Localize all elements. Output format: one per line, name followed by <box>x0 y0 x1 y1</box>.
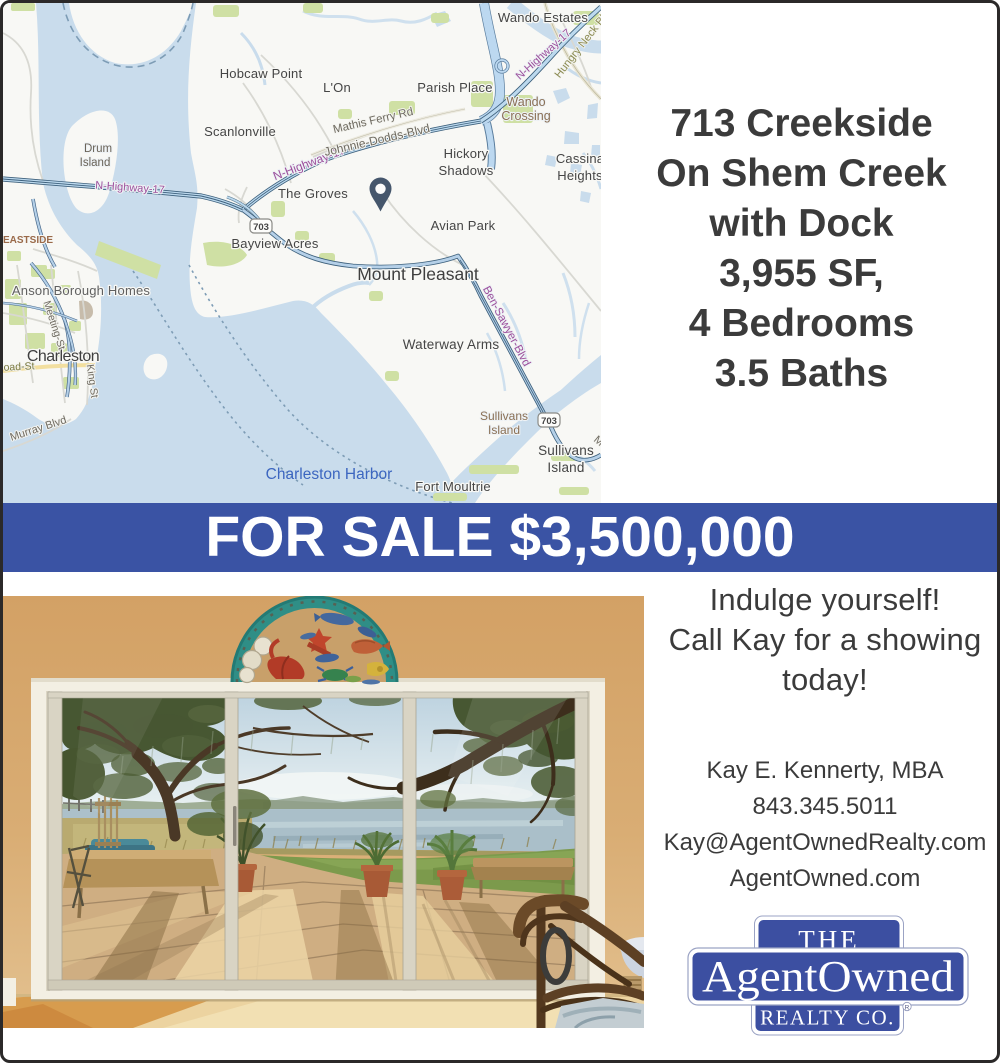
svg-text:Wando: Wando <box>506 95 545 109</box>
svg-text:AgentOwned: AgentOwned <box>702 952 954 1001</box>
svg-text:Avian Park: Avian Park <box>431 218 496 233</box>
svg-text:Sullivans: Sullivans <box>480 409 528 423</box>
svg-text:Island: Island <box>488 423 520 437</box>
svg-text:Anson Borough Homes: Anson Borough Homes <box>12 283 151 298</box>
svg-text:Heights: Heights <box>557 168 601 183</box>
svg-text:Sullivans: Sullivans <box>538 443 594 458</box>
svg-text:Drum: Drum <box>84 143 112 155</box>
svg-text:Bayview Acres: Bayview Acres <box>231 236 318 251</box>
svg-text:Waterway Arms: Waterway Arms <box>403 337 500 352</box>
svg-text:703: 703 <box>541 416 557 427</box>
svg-text:Charleston Harbor: Charleston Harbor <box>266 466 393 483</box>
svg-text:Shadows: Shadows <box>439 163 494 178</box>
svg-text:Hobcaw Point: Hobcaw Point <box>220 66 303 81</box>
svg-text:Island: Island <box>547 460 584 475</box>
svg-text:Cassina: Cassina <box>556 151 601 166</box>
svg-text:Hickory: Hickory <box>444 146 489 161</box>
svg-text:REALTY CO.: REALTY CO. <box>760 1006 895 1030</box>
svg-text:The Groves: The Groves <box>278 186 348 201</box>
svg-text:Crossing: Crossing <box>501 109 550 123</box>
svg-text:Scanlonville: Scanlonville <box>204 124 276 139</box>
svg-text:EASTSIDE: EASTSIDE <box>3 235 53 246</box>
svg-text:Fort Moultrie: Fort Moultrie <box>415 479 491 494</box>
svg-text:Island: Island <box>80 157 111 169</box>
svg-text:703: 703 <box>253 222 269 233</box>
svg-text:Charleston: Charleston <box>27 348 99 365</box>
svg-text:R: R <box>905 1005 910 1012</box>
svg-text:Mount Pleasant: Mount Pleasant <box>357 264 479 284</box>
svg-text:Wando Estates: Wando Estates <box>498 10 589 25</box>
svg-text:Parish Place: Parish Place <box>417 80 492 95</box>
svg-text:oad-St: oad-St <box>3 360 35 374</box>
svg-text:L'On: L'On <box>323 80 351 95</box>
